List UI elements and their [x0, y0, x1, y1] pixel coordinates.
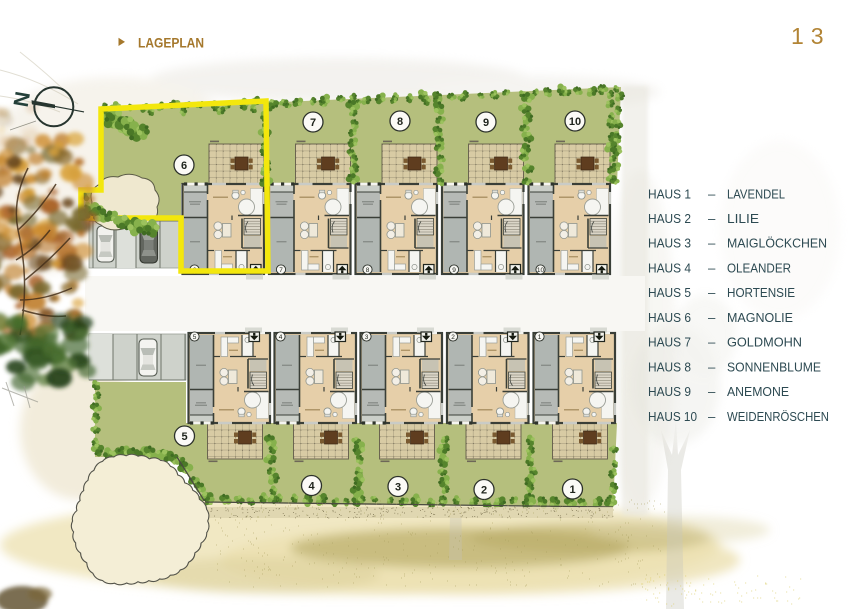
svg-text:8: 8	[366, 267, 370, 274]
svg-text:–: –	[708, 409, 716, 424]
svg-text:–: –	[708, 384, 716, 399]
svg-text:OLEANDER: OLEANDER	[727, 261, 791, 276]
svg-text:–: –	[708, 186, 716, 201]
svg-text:1: 1	[538, 334, 542, 341]
svg-text:WEIDENRÖSCHEN: WEIDENRÖSCHEN	[727, 409, 829, 424]
svg-text:2: 2	[451, 334, 455, 341]
svg-text:HAUS 10: HAUS 10	[648, 409, 697, 424]
svg-text:GOLDMOHN: GOLDMOHN	[727, 335, 802, 350]
svg-text:–: –	[708, 285, 716, 300]
svg-text:13: 13	[791, 23, 831, 49]
svg-text:8: 8	[397, 116, 403, 128]
svg-text:2: 2	[481, 485, 487, 497]
svg-text:HAUS 7: HAUS 7	[648, 335, 691, 350]
svg-text:HAUS 2: HAUS 2	[648, 211, 691, 226]
svg-text:LAGEPLAN: LAGEPLAN	[138, 36, 204, 51]
svg-text:7: 7	[279, 267, 283, 274]
svg-text:10: 10	[537, 267, 545, 274]
svg-text:3: 3	[365, 334, 369, 341]
svg-text:HORTENSIE: HORTENSIE	[727, 285, 795, 300]
svg-text:5: 5	[193, 334, 197, 341]
svg-text:1: 1	[569, 484, 575, 496]
svg-text:–: –	[708, 261, 716, 276]
svg-text:LAVENDEL: LAVENDEL	[727, 186, 785, 201]
svg-text:–: –	[708, 359, 716, 374]
svg-text:5: 5	[181, 431, 187, 443]
svg-text:MAIGLÖCKCHEN: MAIGLÖCKCHEN	[727, 236, 827, 251]
svg-text:HAUS 3: HAUS 3	[648, 236, 691, 251]
svg-text:HAUS 6: HAUS 6	[648, 310, 691, 325]
svg-text:N: N	[8, 90, 33, 109]
svg-text:HAUS 1: HAUS 1	[648, 186, 691, 201]
svg-text:4: 4	[308, 481, 315, 493]
svg-text:–: –	[708, 335, 716, 350]
svg-text:HAUS 5: HAUS 5	[648, 285, 691, 300]
svg-text:9: 9	[483, 117, 489, 129]
svg-text:3: 3	[395, 482, 401, 494]
svg-text:–: –	[708, 310, 716, 325]
svg-text:7: 7	[310, 117, 316, 129]
svg-text:–: –	[708, 211, 716, 226]
svg-text:HAUS 8: HAUS 8	[648, 359, 691, 374]
svg-text:–: –	[708, 236, 716, 251]
svg-text:4: 4	[279, 334, 283, 341]
svg-text:ANEMONE: ANEMONE	[727, 384, 789, 399]
svg-text:HAUS 9: HAUS 9	[648, 384, 691, 399]
svg-text:6: 6	[181, 160, 187, 172]
svg-text:MAGNOLIE: MAGNOLIE	[727, 310, 793, 325]
svg-text:10: 10	[569, 116, 581, 128]
svg-text:9: 9	[452, 267, 456, 274]
svg-text:LILIE: LILIE	[727, 211, 759, 226]
svg-text:HAUS 4: HAUS 4	[648, 261, 691, 276]
svg-text:SONNENBLUME: SONNENBLUME	[727, 359, 821, 374]
